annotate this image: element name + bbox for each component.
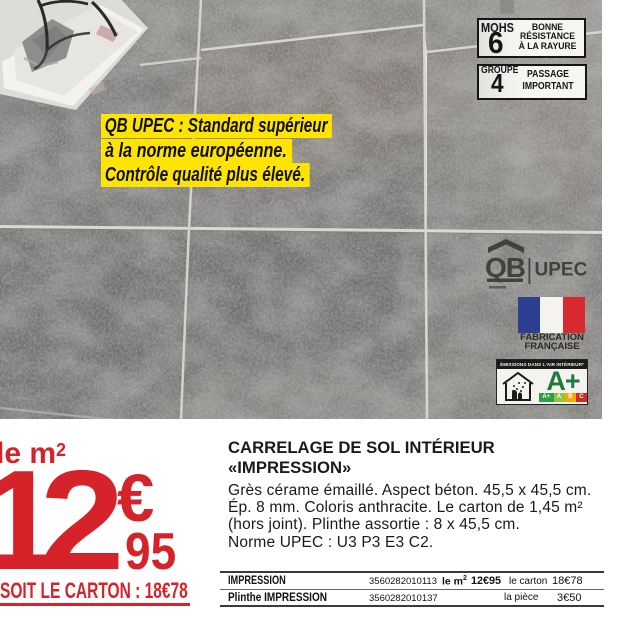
svg-text:UPEC: UPEC xyxy=(535,260,588,281)
svg-text:QB: QB xyxy=(485,252,525,283)
